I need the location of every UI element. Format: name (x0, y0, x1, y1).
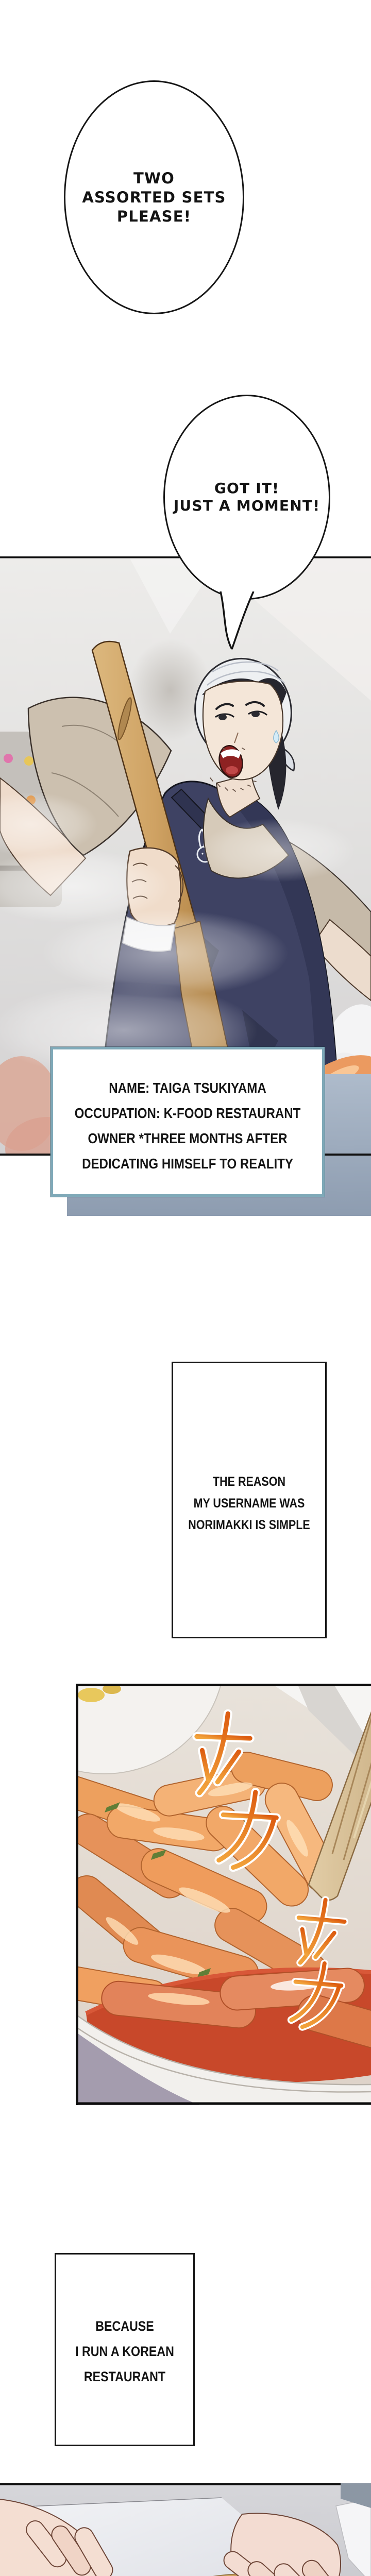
panel-hands-prepping (0, 2483, 371, 2576)
speech-bubble-reply: GOT IT! JUST A MOMENT! (163, 395, 330, 600)
narration-because-text: BECAUSE I RUN A KOREAN RESTAURANT (66, 2255, 184, 2389)
narration-line: RESTAURANT (66, 2364, 184, 2389)
narration-line: MY USERNAME WAS (184, 1493, 315, 1514)
speech-bubble-order: TWO ASSORTED SETS PLEASE! (64, 80, 244, 314)
narration-line: BECAUSE (66, 2314, 184, 2339)
caption-text: NAME: TAIGA TSUKIYAMA OCCUPATION: K-FOOD… (72, 1049, 303, 1176)
caption-box-character-info: NAME: TAIGA TSUKIYAMA OCCUPATION: K-FOOD… (50, 1047, 325, 1197)
bubble-line: PLEASE! (82, 207, 226, 226)
panel-food-closeup: ホカ ホヵ (76, 1684, 371, 2105)
narration-line: I RUN A KOREAN (66, 2339, 184, 2364)
narration-box-reason: THE REASON MY USERNAME WAS NORIMAKKI IS … (172, 1362, 327, 1638)
narration-reason-text: THE REASON MY USERNAME WAS NORIMAKKI IS … (184, 1363, 315, 1536)
speech-bubble-order-text: TWO ASSORTED SETS PLEASE! (82, 169, 226, 226)
bubble-line: JUST A MOMENT! (174, 497, 320, 515)
webtoon-strip: TWO ASSORTED SETS PLEASE! (0, 0, 371, 2576)
bubble-line: ASSORTED SETS (82, 188, 226, 207)
iris-left (218, 714, 227, 720)
steam-wisp (41, 910, 289, 996)
narration-line: THE REASON (184, 1471, 315, 1493)
caption-line: OCCUPATION: K-FOOD RESTAURANT (72, 1100, 303, 1126)
narration-line: NORIMAKKI IS SIMPLE (184, 1514, 315, 1536)
speech-bubble-reply-text: GOT IT! JUST A MOMENT! (174, 480, 320, 515)
panel-top-border (0, 2483, 341, 2485)
steam-wisp (201, 818, 356, 882)
caption-line: NAME: TAIGA TSUKIYAMA (72, 1075, 303, 1100)
narration-box-because: BECAUSE I RUN A KOREAN RESTAURANT (55, 2253, 195, 2446)
caption-line: OWNER *THREE MONTHS AFTER (72, 1126, 303, 1151)
speech-bubble-tail (216, 591, 256, 654)
food-bits (78, 1688, 105, 1702)
iris-right (251, 711, 260, 717)
tongue (226, 766, 238, 774)
bubble-line: GOT IT! (174, 480, 320, 497)
bubble-line: TWO (82, 169, 226, 188)
caption-line: DEDICATING HIMSELF TO REALITY (72, 1151, 303, 1176)
